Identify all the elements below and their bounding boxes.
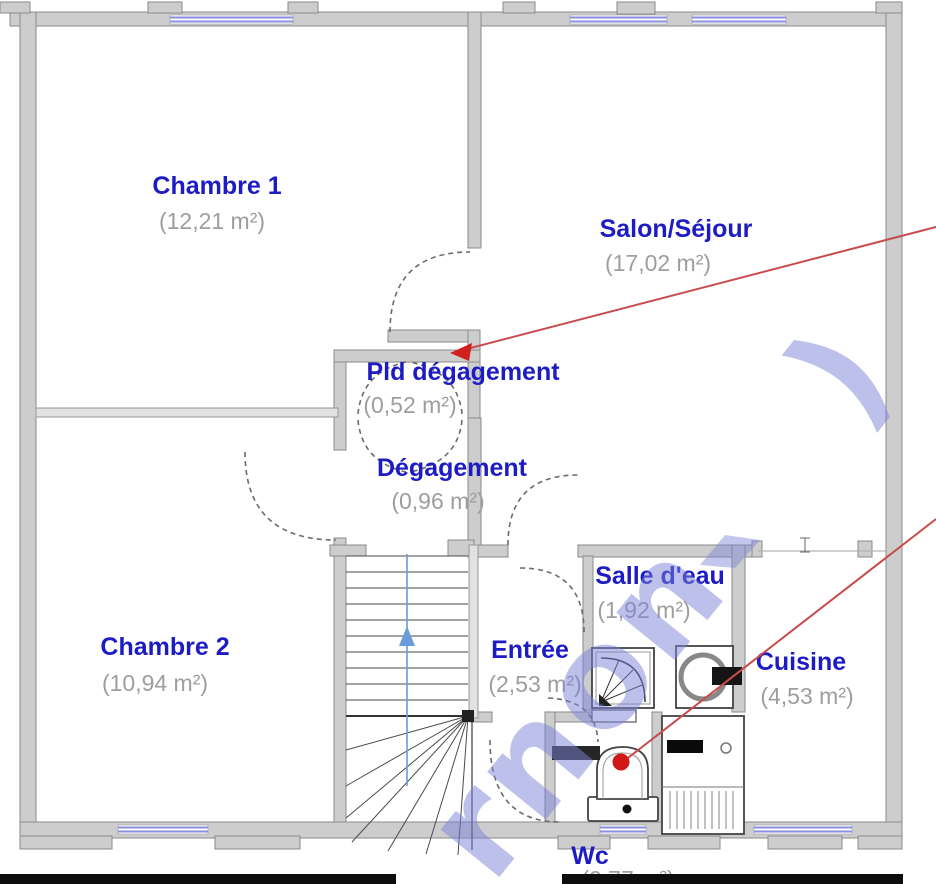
room-label-salon: Salon/Séjour <box>600 215 753 243</box>
annotation-line-pld <box>459 227 936 351</box>
room-label-pld-degagement: Pld dégagement <box>366 358 560 386</box>
annotation-dot <box>613 754 630 771</box>
dimension-tick <box>800 538 810 552</box>
window-top-salon-right <box>692 15 786 24</box>
room-area-cuisine: (4,53 m²) <box>760 683 853 709</box>
room-label-cuisine: Cuisine <box>756 648 846 676</box>
exterior-walls <box>0 2 902 849</box>
room-area-chambre2: (10,94 m²) <box>102 670 208 696</box>
room-label-chambre2: Chambre 2 <box>100 633 229 661</box>
stairs-direction-arrow <box>399 554 415 786</box>
window-bottom-chambre2 <box>118 825 208 834</box>
room-area-chambre1: (12,21 m²) <box>159 208 265 234</box>
room-area-salon: (17,02 m²) <box>605 250 711 276</box>
window-bottom-cuisine <box>754 825 852 834</box>
window-bottom-wc <box>600 825 646 834</box>
bottom-bar-left <box>0 874 396 884</box>
room-area-degagement: (0,96 m²) <box>391 488 484 514</box>
refrigerator-icon <box>662 716 744 834</box>
room-label-chambre1: Chambre 1 <box>152 172 281 200</box>
window-top-chambre1 <box>170 15 293 24</box>
room-label-degagement: Dégagement <box>377 454 528 482</box>
door-swing-arc-chambre1 <box>390 252 470 332</box>
floor-plan: Chambre 1 (12,21 m²) Salon/Séjour (17,02… <box>0 0 936 884</box>
door-swing-arc-chambre2 <box>245 452 336 540</box>
bottom-bars <box>0 874 903 884</box>
door-swing-arc-salon <box>508 475 578 545</box>
bottom-bar-right <box>562 874 903 884</box>
window-top-salon-left <box>570 15 667 24</box>
room-area-pld-degagement: (0,52 m²) <box>363 392 456 418</box>
